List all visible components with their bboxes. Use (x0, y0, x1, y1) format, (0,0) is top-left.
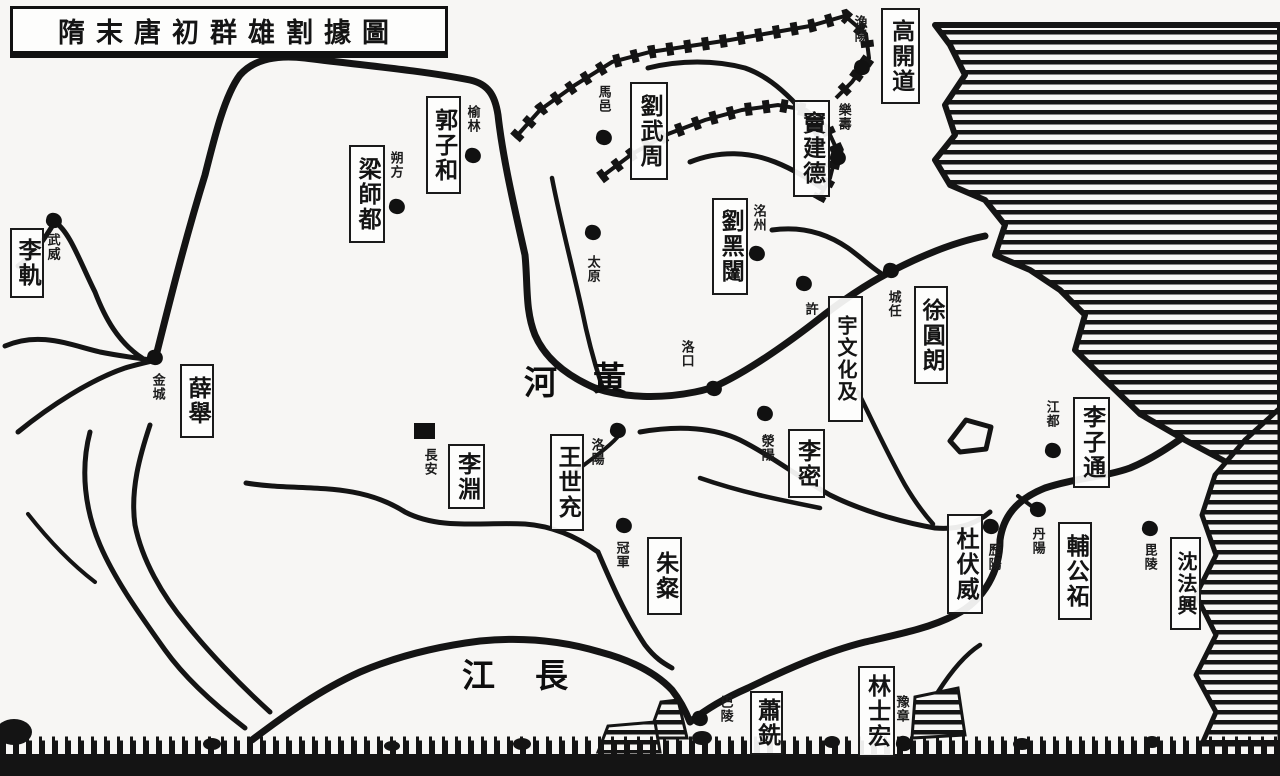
river-name-char-3: 江 (462, 649, 495, 697)
map-title: 隋末唐初群雄割據圖 (58, 11, 400, 50)
place-label-9: 洺州 (751, 204, 765, 232)
warlord-box-12: 王世充 (550, 434, 584, 531)
capital-marker (414, 423, 435, 439)
warlord-box-9: 宇文化及 (828, 296, 863, 422)
place-label-8: 樂壽 (836, 103, 850, 131)
warlord-box-8: 薛舉 (180, 364, 214, 438)
warlord-box-13: 李密 (788, 429, 825, 498)
warlord-box-4: 郭子和 (426, 96, 461, 194)
map-title-box: 隋末唐初群雄割據圖 (10, 6, 448, 58)
river-name-char-4: 長 (535, 649, 568, 697)
place-label-4: 榆林 (465, 105, 479, 133)
sea-lower-right (1196, 408, 1280, 744)
warlord-box-20: 林士宏 (858, 666, 895, 757)
warlord-box-19: 蕭銑 (750, 691, 783, 755)
warlord-box-1: 高開道 (881, 8, 920, 104)
place-label-3: 朔方 (388, 151, 402, 179)
warlord-box-14: 朱粲 (647, 537, 682, 615)
place-label-17: 江都 (1044, 400, 1058, 428)
warlord-box-11: 李淵 (448, 444, 485, 509)
river-name-char-2: 黃 (593, 352, 626, 400)
place-label-16: 冠軍 (614, 541, 628, 569)
place-label-1: 武威 (45, 233, 59, 261)
place-label-19: 丹陽 (1030, 527, 1044, 555)
warlord-box-15: 杜伏威 (947, 514, 983, 614)
warlord-box-2: 劉武周 (630, 82, 668, 180)
warlord-box-3: 竇建德 (793, 100, 830, 197)
warlord-box-7: 劉黑闥 (712, 198, 748, 295)
place-label-21: 巴陵 (718, 695, 732, 723)
warlord-box-18: 沈法興 (1170, 537, 1201, 630)
place-label-14: 長安 (422, 448, 436, 476)
map-canvas: 隋末唐初群雄割據圖 河黃江長 高開道劉武周竇建德郭子和梁師都李軌劉黑闥薛舉宇文化… (0, 0, 1280, 776)
place-label-20: 毘陵 (1142, 543, 1156, 571)
place-label-15: 城任 (886, 290, 900, 318)
warlord-box-17: 李子通 (1073, 397, 1110, 488)
warlord-box-16: 輔公祏 (1058, 522, 1092, 620)
river-name-char-1: 河 (524, 356, 557, 404)
warlord-box-10: 徐圓朗 (914, 286, 948, 384)
place-label-10: 許 (803, 302, 817, 316)
place-label-11: 洛口 (679, 340, 693, 368)
place-label-7: 漁陽 (852, 15, 866, 43)
place-label-12: 洛陽 (589, 438, 603, 466)
place-label-6: 太原 (585, 255, 599, 283)
place-label-22: 豫章 (894, 695, 908, 723)
warlord-box-6: 李軌 (10, 228, 44, 298)
place-label-13: 滎陽 (759, 434, 773, 462)
place-label-2: 金城 (150, 373, 164, 401)
warlord-box-5: 梁師都 (349, 145, 385, 243)
place-label-18: 歷陽 (986, 543, 1000, 571)
place-label-5: 馬邑 (596, 85, 610, 113)
